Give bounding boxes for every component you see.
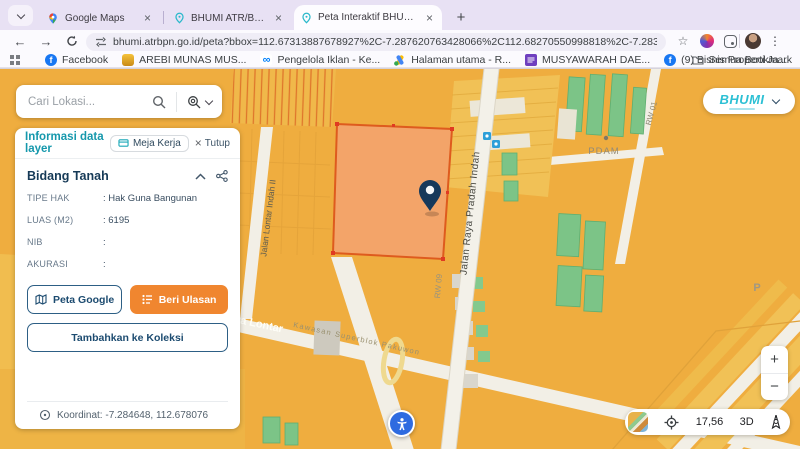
meja-kerja-button[interactable]: Meja Kerja <box>110 135 189 152</box>
zoom-out-button[interactable]: − <box>761 374 788 401</box>
avatar <box>745 33 761 49</box>
toolbar-separator <box>739 34 740 48</box>
chevron-up-icon[interactable] <box>195 173 206 180</box>
field-row: LUAS (M2) : 6195 <box>27 215 228 226</box>
bhumi-logo-subline <box>729 108 755 110</box>
tambahkan-koleksi-button[interactable]: Tambahkan ke Koleksi <box>27 323 228 352</box>
reload-icon <box>66 35 78 47</box>
field-value: : <box>103 259 106 270</box>
chevron-down-icon[interactable] <box>771 95 779 103</box>
chevron-down-icon <box>16 10 24 18</box>
search-divider <box>176 92 177 112</box>
bookmark-label: Facebook <box>62 54 108 66</box>
bhumi-pin-icon <box>301 12 312 24</box>
all-bookmarks-button[interactable]: Semua Bookmark <box>692 54 792 66</box>
tab-title: Peta Interaktif BHUMI ATR/BPN <box>318 12 418 23</box>
bookmark-arebi[interactable]: AREBI MUNAS MUS... <box>122 54 246 66</box>
info-panel-body: Bidang Tanah TIPE HAK : Hak Guna Bangun <box>15 159 240 429</box>
bookmark-label: Pengelola Iklan - Ke... <box>277 54 380 66</box>
beri-ulasan-button[interactable]: Beri Ulasan <box>130 285 228 314</box>
bookmark-facebook[interactable]: f Facebook <box>45 54 108 66</box>
search-icon <box>152 95 166 109</box>
label-parking: P <box>753 282 760 294</box>
menu-button[interactable]: ⋮ <box>766 32 784 50</box>
accessibility-button[interactable] <box>388 410 415 437</box>
bookmark-halaman-utama-1[interactable]: Halaman utama - R... <box>394 54 511 66</box>
tab-separator <box>163 11 164 24</box>
meta-icon: ∞ <box>260 54 272 66</box>
field-value: : <box>103 237 106 248</box>
tutup-label: Tutup <box>205 138 230 149</box>
bookmark-label: Halaman utama - R... <box>411 54 511 66</box>
reload-button[interactable] <box>62 31 82 51</box>
chevron-down-icon <box>205 96 213 104</box>
zoom-controls: + − <box>761 346 788 400</box>
bookmarks-bar: f Facebook AREBI MUNAS MUS... ∞ Pengelol… <box>0 53 800 68</box>
share-icon[interactable] <box>216 170 228 182</box>
bookmark-label: MUSYAWARAH DAE... <box>542 54 650 66</box>
zoom-in-button[interactable]: + <box>761 346 788 373</box>
search-bar <box>16 85 222 118</box>
panel-title: Informasi data layer <box>25 131 104 155</box>
field-value: : Hak Guna Bangunan <box>103 193 197 204</box>
field-row: TIPE HAK : Hak Guna Bangunan <box>27 193 228 204</box>
google-maps-pin-icon <box>47 12 59 25</box>
tab-search-button[interactable] <box>8 5 33 26</box>
new-tab-button[interactable]: + <box>451 7 471 27</box>
all-bookmarks-label: Semua Bookmark <box>709 54 792 66</box>
apps-grid-icon <box>10 55 21 66</box>
bhumi-logo: BHUMI <box>719 93 764 110</box>
field-label: AKURASI <box>27 259 103 270</box>
accessibility-icon <box>394 416 410 432</box>
bhumi-logo-text: BHUMI <box>719 92 764 107</box>
peta-google-label: Peta Google <box>53 294 114 306</box>
field-label: TIPE HAK <box>27 193 103 204</box>
peta-google-button[interactable]: Peta Google <box>27 285 122 314</box>
field-row: NIB : <box>27 237 228 248</box>
three-dots-icon: ⋮ <box>769 34 781 48</box>
tab-bhumi[interactable]: BHUMI ATR/BPN × <box>167 6 291 30</box>
bhumi-pin-icon <box>174 12 185 24</box>
back-button[interactable]: ← <box>10 31 30 51</box>
coordinate-bar: Koordinat: -7.284648, 112.678076 <box>27 401 228 429</box>
extensions-button[interactable] <box>721 32 739 50</box>
label-pdam: PDAM <box>588 146 619 157</box>
arebi-icon <box>122 54 134 66</box>
bookmark-pengelola-iklan[interactable]: ∞ Pengelola Iklan - Ke... <box>260 54 380 66</box>
browser-window: Google Maps × BHUMI ATR/BPN × Peta Inter… <box>0 0 800 449</box>
basemap-switcher[interactable] <box>628 412 648 432</box>
poi-dot <box>604 136 608 140</box>
beri-ulasan-label: Beri Ulasan <box>159 294 217 306</box>
compass-north-icon[interactable] <box>770 415 782 430</box>
coordinate-text: Koordinat: -7.284648, 112.678076 <box>57 410 208 421</box>
tab-close-icon[interactable]: × <box>273 11 284 25</box>
map-icon <box>35 294 47 305</box>
facebook-icon: f <box>45 54 57 66</box>
search-input[interactable] <box>16 96 148 108</box>
url-text: bhumi.atrbpn.go.id/peta?bbox=112.6731388… <box>113 36 657 48</box>
mode-3d-button[interactable]: 3D <box>740 416 754 428</box>
field-label: NIB <box>27 237 103 248</box>
bhumi-logo-button[interactable]: BHUMI <box>703 88 795 114</box>
site-info-icon <box>95 36 107 48</box>
bookmark-musyawarah[interactable]: MUSYAWARAH DAE... <box>525 54 650 66</box>
zoom-level-value: 17,56 <box>696 416 724 428</box>
extension-cookie-icon <box>724 35 737 48</box>
action-buttons: Peta Google Beri Ulasan <box>27 285 228 314</box>
tab-close-icon[interactable]: × <box>424 11 435 25</box>
tab-title: BHUMI ATR/BPN <box>191 13 267 24</box>
parcel-stripes <box>230 69 336 127</box>
info-panel-header: Informasi data layer Meja Kerja × Tutup <box>15 128 240 159</box>
workspace-icon <box>118 138 129 148</box>
google-ads-icon <box>394 55 406 66</box>
bookmark-label: AREBI MUNAS MUS... <box>139 54 246 66</box>
address-bar[interactable]: bhumi.atrbpn.go.id/peta?bbox=112.6731388… <box>86 33 666 51</box>
map-viewport: Jalan Raya Pradah Indah Jalan Lontar Ind… <box>0 68 800 449</box>
map-control-bar: 17,56 3D <box>625 409 790 435</box>
field-row: AKURASI : <box>27 259 228 270</box>
tab-peta-interaktif[interactable]: Peta Interaktif BHUMI ATR/BPN × <box>294 5 442 30</box>
field-label: LUAS (M2) <box>27 215 103 226</box>
tab-close-icon[interactable]: × <box>142 11 153 25</box>
section-header: Bidang Tanah <box>27 169 228 183</box>
meja-kerja-label: Meja Kerja <box>133 138 181 149</box>
locate-icon[interactable] <box>664 415 679 430</box>
building <box>557 108 577 139</box>
apps-grid-button[interactable] <box>10 55 21 66</box>
close-icon: × <box>195 136 202 150</box>
tab-google-maps[interactable]: Google Maps × <box>40 6 160 30</box>
section-title: Bidang Tanah <box>27 169 185 183</box>
zoom-search-icon <box>187 95 201 109</box>
forward-button[interactable]: → <box>36 31 56 51</box>
info-panel: Informasi data layer Meja Kerja × Tutup … <box>15 128 240 429</box>
advanced-search-button[interactable] <box>183 95 222 109</box>
musyawarah-icon <box>525 54 537 66</box>
bookmark-star-button[interactable]: ☆ <box>674 32 692 50</box>
gradient-extension-icon <box>700 34 714 48</box>
extension-icon[interactable] <box>698 32 716 50</box>
field-value: : 6195 <box>103 215 129 226</box>
close-panel-button[interactable]: × Tutup <box>195 136 230 150</box>
tab-strip: Google Maps × BHUMI ATR/BPN × Peta Inter… <box>0 0 800 30</box>
tambahkan-label: Tambahkan ke Koleksi <box>71 332 183 344</box>
review-list-icon <box>142 294 153 305</box>
profile-button[interactable] <box>744 32 762 50</box>
facebook-icon: f <box>664 54 676 66</box>
tab-title: Google Maps <box>65 13 136 24</box>
search-button[interactable] <box>148 95 170 109</box>
coordinate-icon <box>39 409 51 421</box>
folder-icon <box>692 55 704 65</box>
